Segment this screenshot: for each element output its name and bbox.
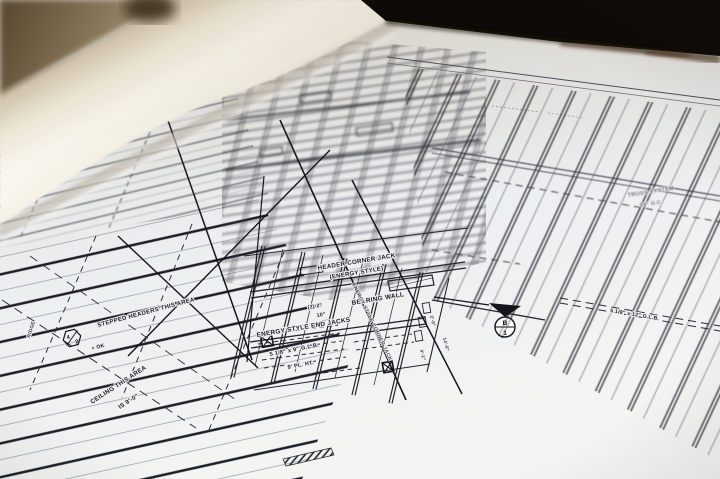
blueprint-photo: B 1 4 2 HEADER CORNER JACK (ENERGY STYLE… — [0, 0, 720, 479]
vignette-overlay — [0, 0, 720, 479]
blueprint-scene: B 1 4 2 HEADER CORNER JACK (ENERGY STYLE… — [0, 0, 720, 479]
